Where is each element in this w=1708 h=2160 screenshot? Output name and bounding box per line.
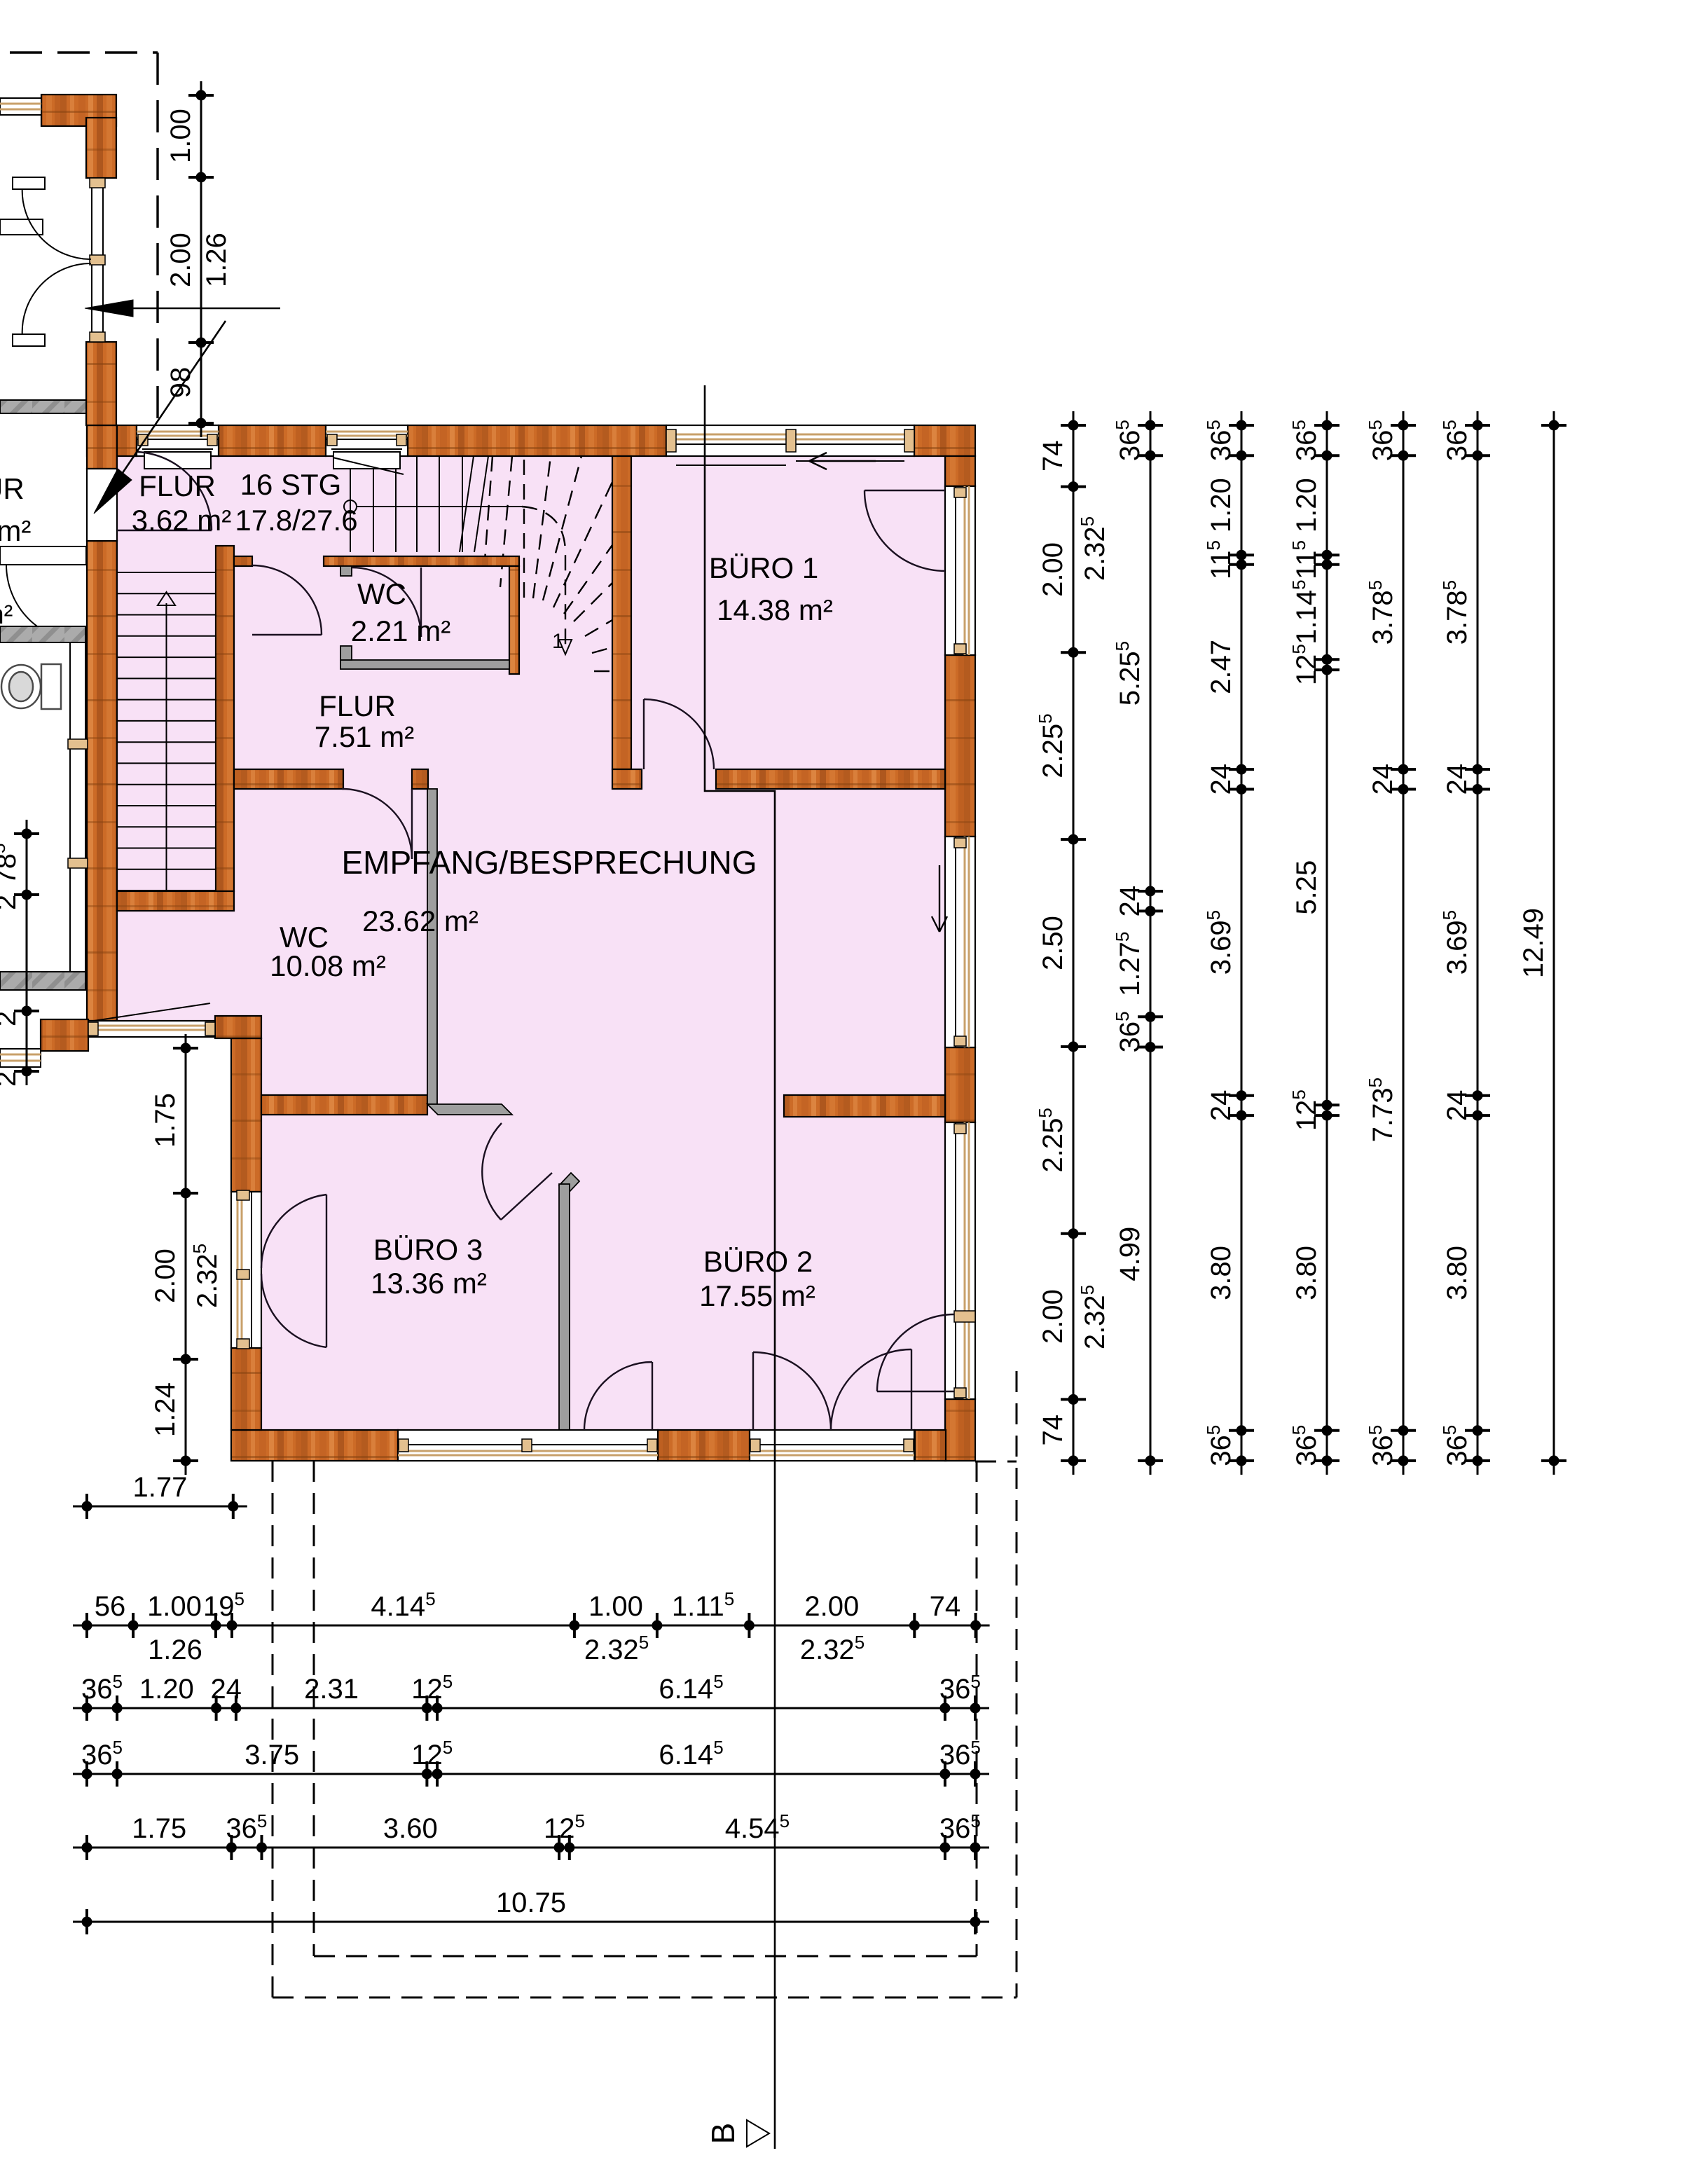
svg-text:2: 2 xyxy=(0,1011,22,1026)
svg-text:74: 74 xyxy=(1038,441,1068,472)
svg-text:m²: m² xyxy=(0,600,13,630)
svg-text:1.77: 1.77 xyxy=(132,1472,187,1503)
svg-text:13.36 m²: 13.36 m² xyxy=(371,1267,487,1300)
svg-text:24: 24 xyxy=(1115,886,1145,917)
svg-text:1.75: 1.75 xyxy=(132,1813,186,1844)
svg-text:2.00: 2.00 xyxy=(150,1248,181,1303)
svg-text:3.80: 3.80 xyxy=(1206,1246,1237,1300)
svg-text:2: 2 xyxy=(0,895,22,910)
svg-text:2.00: 2.00 xyxy=(165,233,196,287)
svg-text:14.38 m²: 14.38 m² xyxy=(717,593,833,626)
svg-text:3.62 m²: 3.62 m² xyxy=(132,504,231,537)
svg-text:WC: WC xyxy=(280,921,329,954)
svg-text:3.80: 3.80 xyxy=(1442,1246,1473,1300)
svg-text:3.62 m²: 3.62 m² xyxy=(0,514,31,547)
svg-text:1.20: 1.20 xyxy=(1206,478,1237,532)
svg-text:BÜRO 2: BÜRO 2 xyxy=(703,1245,813,1278)
svg-text:74: 74 xyxy=(1038,1415,1068,1446)
svg-text:B: B xyxy=(705,2123,741,2145)
svg-text:1.24: 1.24 xyxy=(150,1382,181,1437)
svg-text:3.80: 3.80 xyxy=(1291,1246,1322,1300)
svg-text:1: 1 xyxy=(552,630,564,653)
svg-text:1.00: 1.00 xyxy=(588,1591,643,1622)
svg-text:4.99: 4.99 xyxy=(1115,1227,1145,1281)
svg-text:24: 24 xyxy=(1368,764,1398,795)
svg-text:3.60: 3.60 xyxy=(383,1813,438,1844)
svg-text:1.00: 1.00 xyxy=(147,1591,202,1622)
svg-text:2.47: 2.47 xyxy=(1206,640,1237,694)
svg-text:2.00: 2.00 xyxy=(1038,1289,1068,1344)
svg-text:EMPFANG/BESPRECHUNG: EMPFANG/BESPRECHUNG xyxy=(342,844,757,881)
svg-text:16 STG: 16 STG xyxy=(240,468,342,501)
svg-text:1.75: 1.75 xyxy=(150,1093,181,1148)
svg-text:5.25: 5.25 xyxy=(1291,860,1322,915)
svg-text:1.20: 1.20 xyxy=(1291,478,1322,532)
svg-text:12.49: 12.49 xyxy=(1518,908,1549,978)
svg-text:24: 24 xyxy=(1442,764,1473,795)
svg-text:1.00: 1.00 xyxy=(165,109,196,163)
svg-text:74: 74 xyxy=(930,1591,961,1622)
svg-text:3.75: 3.75 xyxy=(245,1740,299,1770)
svg-text:24: 24 xyxy=(1206,764,1237,795)
svg-text:1.26: 1.26 xyxy=(201,233,232,287)
svg-text:1.26: 1.26 xyxy=(148,1635,202,1665)
svg-text:FLUR: FLUR xyxy=(0,472,25,505)
svg-text:10.08 m²: 10.08 m² xyxy=(270,949,386,982)
svg-text:98: 98 xyxy=(165,367,196,399)
svg-text:24: 24 xyxy=(1206,1090,1237,1122)
svg-text:FLUR: FLUR xyxy=(319,689,396,722)
svg-text:24: 24 xyxy=(210,1674,242,1705)
svg-text:2.00: 2.00 xyxy=(1038,542,1068,597)
svg-text:1.20: 1.20 xyxy=(139,1674,194,1705)
svg-text:2: 2 xyxy=(0,1071,22,1087)
svg-text:2.50: 2.50 xyxy=(1038,916,1068,970)
svg-text:2.31: 2.31 xyxy=(304,1674,359,1705)
svg-text:56: 56 xyxy=(95,1591,126,1622)
svg-text:17.8/27.6: 17.8/27.6 xyxy=(235,504,357,537)
svg-text:10.75: 10.75 xyxy=(496,1887,566,1918)
svg-text:BÜRO 1: BÜRO 1 xyxy=(709,551,818,584)
svg-text:2.21 m²: 2.21 m² xyxy=(351,614,450,647)
svg-text:23.62 m²: 23.62 m² xyxy=(362,904,478,937)
svg-text:FLUR: FLUR xyxy=(139,469,216,502)
svg-text:WC: WC xyxy=(357,577,406,610)
svg-text:7.51 m²: 7.51 m² xyxy=(315,720,414,753)
svg-text:17.55 m²: 17.55 m² xyxy=(699,1279,815,1312)
svg-text:24: 24 xyxy=(1442,1090,1473,1122)
svg-text:2.00: 2.00 xyxy=(804,1591,859,1622)
svg-text:BÜRO 3: BÜRO 3 xyxy=(373,1233,483,1266)
